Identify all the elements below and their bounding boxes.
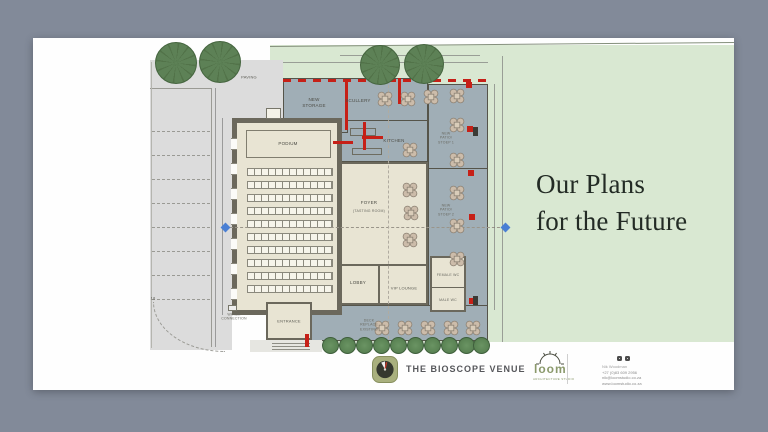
window-segment xyxy=(231,163,237,175)
new-column-marker xyxy=(466,82,472,88)
seat-row xyxy=(247,285,333,293)
window-segment xyxy=(231,188,237,200)
bioscope-logo xyxy=(372,356,398,383)
bush-icon xyxy=(339,337,356,354)
window-segment xyxy=(231,263,237,275)
table-icon xyxy=(374,320,390,336)
window-segment xyxy=(231,213,237,225)
guide-line-v xyxy=(388,70,389,344)
seat-row xyxy=(247,246,333,254)
slide-title-line1: Our Plans xyxy=(536,166,726,203)
studio-tagline: ARCHITECTURE STUDIO xyxy=(533,377,574,381)
bush-icon xyxy=(473,337,490,354)
stair-marker xyxy=(473,296,478,305)
parking-bay-line xyxy=(152,203,210,204)
studio-name: loom xyxy=(534,362,567,376)
water-connection-box xyxy=(228,305,237,311)
table-icon xyxy=(377,91,393,107)
dimension-line xyxy=(215,88,216,347)
wall-lobby-v xyxy=(378,266,380,305)
bush-icon xyxy=(356,337,373,354)
bush-icon xyxy=(373,337,390,354)
window-segment xyxy=(231,138,237,150)
table-icon xyxy=(402,182,418,198)
bush-icon xyxy=(390,337,407,354)
table-icon xyxy=(423,89,439,105)
table-icon xyxy=(465,320,481,336)
facebook-icon xyxy=(617,356,622,361)
table-icon xyxy=(397,320,413,336)
presentation-slide-screenshot: PODIUM NEW STORAGE SCULLERY KITCHEN FOYE… xyxy=(0,0,768,432)
contact-website: www.loomstudio.co.za xyxy=(602,381,662,387)
parking-bay-line xyxy=(152,275,210,276)
stair-marker xyxy=(473,127,478,136)
table-icon xyxy=(449,117,465,133)
table-icon xyxy=(449,251,465,267)
seat-row xyxy=(247,207,333,215)
bioscope-logo-icon xyxy=(372,356,398,383)
window-segment xyxy=(231,288,237,300)
tree-icon xyxy=(360,45,400,85)
table-icon xyxy=(400,91,416,107)
table-icon xyxy=(403,205,419,221)
new-column-marker xyxy=(468,170,474,176)
wall-lobby-t xyxy=(342,264,426,266)
partition-patio xyxy=(428,168,488,169)
venue-name: THE BIOSCOPE VENUE xyxy=(406,364,526,374)
seat-row xyxy=(247,168,333,176)
dimension-line xyxy=(502,56,503,342)
bush-icon xyxy=(424,337,441,354)
seat-row xyxy=(247,194,333,202)
parking-bay-line xyxy=(152,227,210,228)
new-wall-segment xyxy=(362,136,383,139)
contact-block: Nik Woodman +27 (0)83 609 2956 nik@looms… xyxy=(602,364,662,386)
new-wall-segment xyxy=(305,334,309,347)
bush-icon xyxy=(407,337,424,354)
podium-room xyxy=(246,130,331,158)
wall-wc-mid xyxy=(432,287,464,288)
dimension-line xyxy=(222,118,223,315)
table-icon xyxy=(449,152,465,168)
instagram-icon xyxy=(625,356,630,361)
parking-bay-line xyxy=(152,179,210,180)
entrance-step xyxy=(272,349,310,350)
parking-boundary-h xyxy=(150,88,211,89)
table-icon xyxy=(449,88,465,104)
plan-left-boundary xyxy=(151,62,152,348)
slide-title-line2: for the Future xyxy=(536,203,726,240)
table-icon xyxy=(449,218,465,234)
footer-divider xyxy=(567,354,568,384)
section-line-h xyxy=(225,227,510,228)
kitchen-counter xyxy=(352,148,382,155)
table-icon xyxy=(402,232,418,248)
table-icon xyxy=(443,320,459,336)
new-wall-segment xyxy=(333,141,353,144)
window-segment xyxy=(231,238,237,250)
parking-bay-line xyxy=(152,131,210,132)
fire-escape-box xyxy=(266,108,281,119)
seat-row xyxy=(247,233,333,241)
tree-icon xyxy=(155,42,197,84)
slide-title: Our Plans for the Future xyxy=(536,166,726,240)
bush-icon xyxy=(322,337,339,354)
dimension-line xyxy=(494,84,495,310)
table-icon xyxy=(449,185,465,201)
new-column-marker xyxy=(469,214,475,220)
parking-bay-line xyxy=(152,155,210,156)
tree-icon xyxy=(404,44,444,84)
bush-icon xyxy=(441,337,458,354)
new-wall-segment xyxy=(345,80,348,130)
parking-bay-line xyxy=(152,251,210,252)
seat-row xyxy=(247,181,333,189)
tree-icon xyxy=(199,41,241,83)
seat-row xyxy=(247,272,333,280)
table-icon xyxy=(420,320,436,336)
seat-row xyxy=(247,259,333,267)
parking-bay-line xyxy=(152,299,210,300)
table-icon xyxy=(402,142,418,158)
